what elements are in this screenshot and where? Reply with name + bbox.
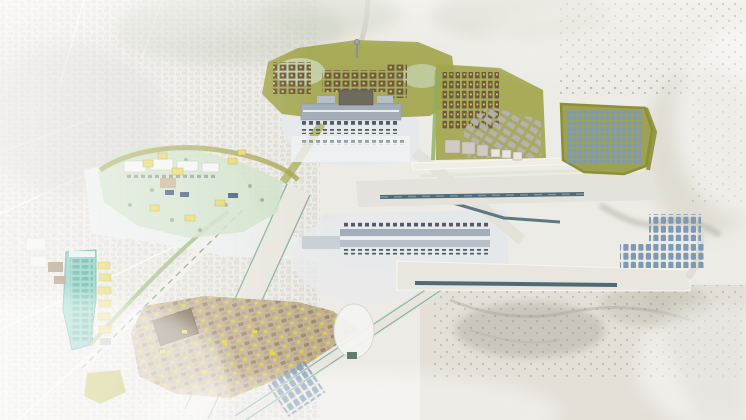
main-terminal-head [339, 90, 373, 105]
campus-cluster-east [387, 63, 407, 98]
solar-farm-northeast [566, 109, 642, 163]
midfield-concourse-south-bar [340, 240, 490, 247]
main-terminal-gates-north [302, 121, 400, 126]
white-satellite-building [334, 304, 374, 358]
midfield-gates-north [341, 221, 489, 227]
solar-cluster-east-lower [620, 244, 704, 268]
midfield-concourse-north-bar [340, 229, 490, 236]
green-structure-south [347, 352, 357, 359]
campus-cluster-center [322, 70, 386, 92]
map-canvas [0, 0, 746, 420]
haze-northeast [480, 0, 720, 78]
midfield-gates-south [341, 249, 489, 255]
main-terminal-gates-south [302, 129, 400, 134]
main-terminal-wing-east [377, 96, 393, 103]
main-terminal-wing-west [317, 96, 335, 103]
solar-cluster-east-upper [649, 214, 701, 241]
runway-southeast-asphalt [415, 283, 617, 285]
airport-masterplan-map [0, 0, 746, 420]
remote-stands [300, 140, 404, 145]
main-terminal-spine [303, 110, 399, 112]
midfield-concourse-spine [340, 237, 490, 239]
